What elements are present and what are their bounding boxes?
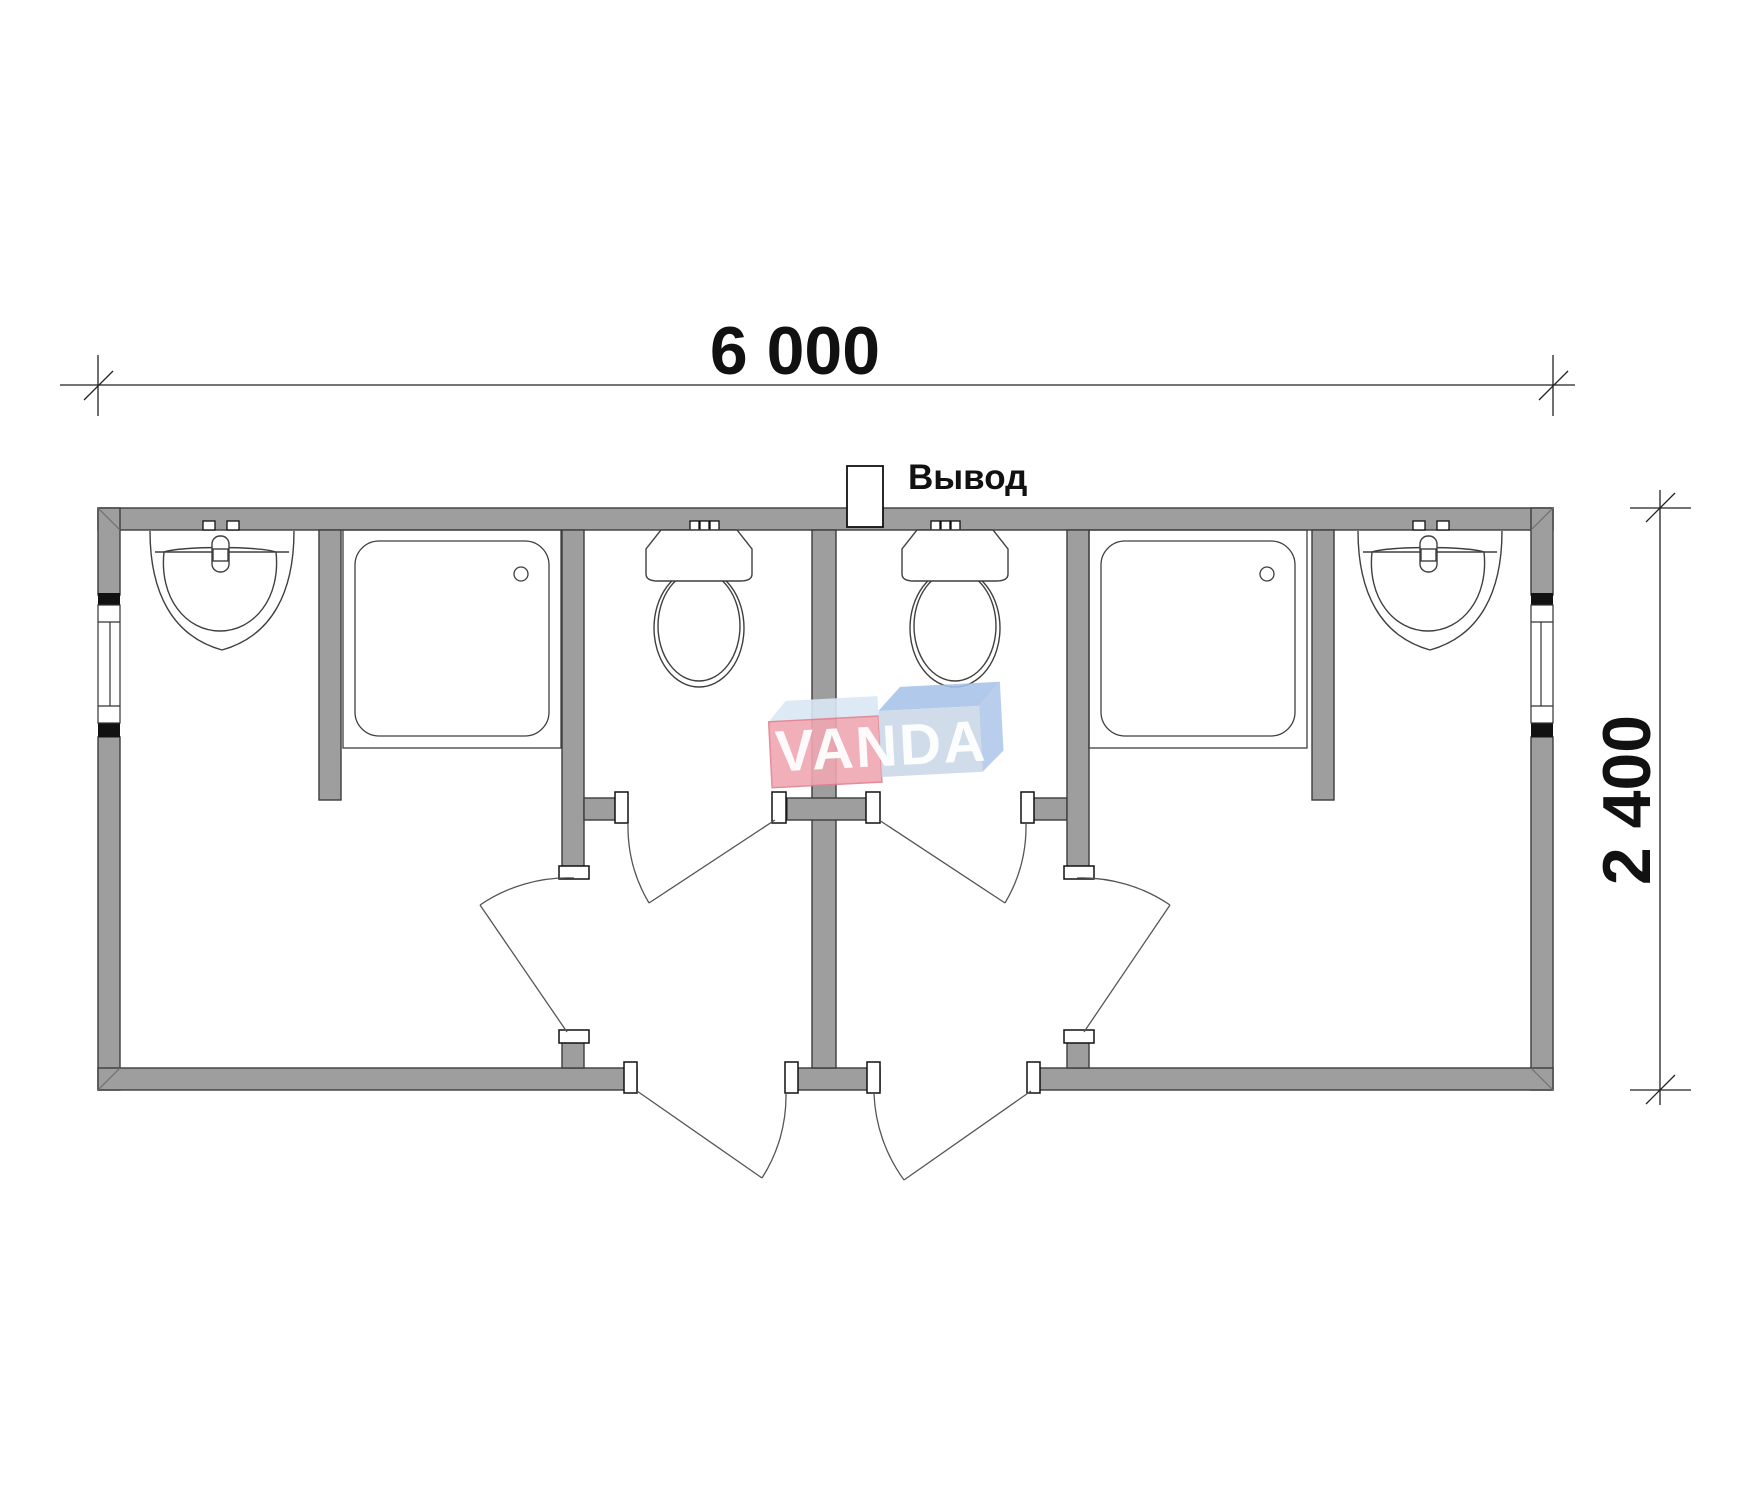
dimension-width-value: 6 000 bbox=[710, 313, 880, 389]
window-cap bbox=[98, 723, 120, 737]
door-arc-room-right bbox=[1077, 878, 1170, 905]
stub-left-wc bbox=[584, 798, 618, 820]
partition-left-shower-wc bbox=[562, 530, 584, 868]
door-arc-wc-left bbox=[628, 824, 649, 903]
toilet-bowl-inner bbox=[914, 571, 996, 681]
wall-right-lower bbox=[1531, 737, 1553, 1090]
shower-tray bbox=[355, 541, 549, 736]
door-arc-room-left bbox=[480, 878, 574, 905]
door-arc-exterior-right bbox=[874, 1094, 904, 1180]
window-cap bbox=[1531, 593, 1553, 605]
toilet-left bbox=[646, 530, 752, 687]
window-right bbox=[1531, 593, 1553, 737]
window-frame bbox=[1531, 605, 1553, 723]
wall-bottom-left bbox=[98, 1068, 637, 1090]
sink-left bbox=[150, 531, 294, 650]
window-cap bbox=[98, 593, 120, 605]
stub-left-bottom bbox=[562, 1042, 584, 1068]
watermark-text: VANDA bbox=[774, 708, 989, 784]
wall-wc-crossbar bbox=[787, 798, 867, 820]
door-leaf-exterior-left bbox=[637, 1091, 762, 1178]
partition-right-wc-shower bbox=[1067, 530, 1089, 868]
floor-plan-drawing: Вывод VANDA 6 000 2 400 bbox=[0, 0, 1763, 1487]
window-left bbox=[98, 593, 120, 737]
door-leaf-exterior-right bbox=[904, 1091, 1031, 1180]
dimension-height-value: 2 400 bbox=[1589, 715, 1665, 885]
outlet-label: Вывод bbox=[908, 458, 1027, 497]
door-leaf-wc-right bbox=[879, 820, 1005, 903]
toilet-tank bbox=[902, 530, 1008, 581]
shower-right bbox=[1089, 530, 1307, 748]
toilet-bowl-inner bbox=[658, 571, 740, 681]
shower-enclosure bbox=[343, 530, 561, 748]
wall-left-lower bbox=[98, 737, 120, 1090]
door-leaf-room-right bbox=[1084, 905, 1170, 1032]
wall-bottom-right bbox=[1028, 1068, 1553, 1090]
wall-left-upper bbox=[98, 508, 120, 595]
shower-drain bbox=[1260, 567, 1274, 581]
utility-outlet-box bbox=[847, 466, 883, 527]
wall-bottom-center bbox=[786, 1068, 880, 1090]
toilet-right bbox=[902, 530, 1008, 687]
shower-enclosure bbox=[1089, 530, 1307, 748]
wall-right-upper bbox=[1531, 508, 1553, 595]
shower-tray bbox=[1101, 541, 1295, 736]
partition-right-shower-sink bbox=[1312, 530, 1334, 800]
window-frame bbox=[98, 605, 120, 723]
window-cap bbox=[1531, 723, 1553, 737]
sink-right bbox=[1358, 531, 1502, 650]
stub-right-wc bbox=[1033, 798, 1067, 820]
stub-right-bottom bbox=[1067, 1042, 1089, 1068]
door-arc-wc-right bbox=[1005, 824, 1026, 903]
interior-walls bbox=[319, 530, 1334, 1068]
sink-faucet-handle bbox=[213, 549, 228, 561]
wall-top bbox=[98, 508, 1553, 530]
door-leaf-wc-left bbox=[649, 820, 775, 903]
shower-left bbox=[343, 530, 561, 748]
toilet-tank bbox=[646, 530, 752, 581]
shower-drain bbox=[514, 567, 528, 581]
door-arc-exterior-left bbox=[762, 1094, 786, 1178]
door-leaf-room-left bbox=[480, 905, 567, 1032]
floor-plan-canvas: Вывод VANDA 6 000 2 400 bbox=[0, 0, 1763, 1487]
sink-faucet-handle bbox=[1421, 549, 1436, 561]
vanda-watermark: VANDA bbox=[767, 682, 1005, 788]
partition-left-sink-shower bbox=[319, 530, 341, 800]
